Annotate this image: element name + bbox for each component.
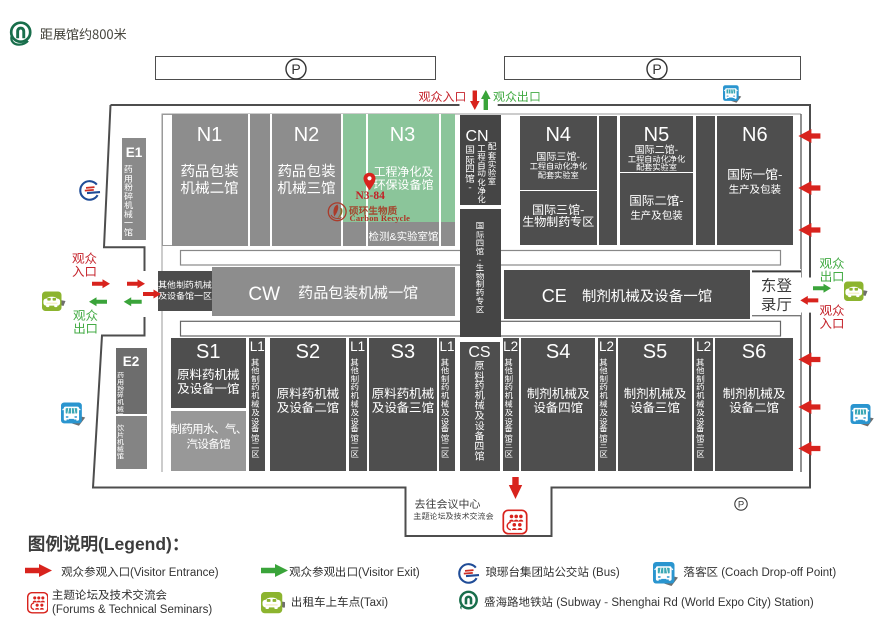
svg-text:P: P [738, 500, 744, 511]
